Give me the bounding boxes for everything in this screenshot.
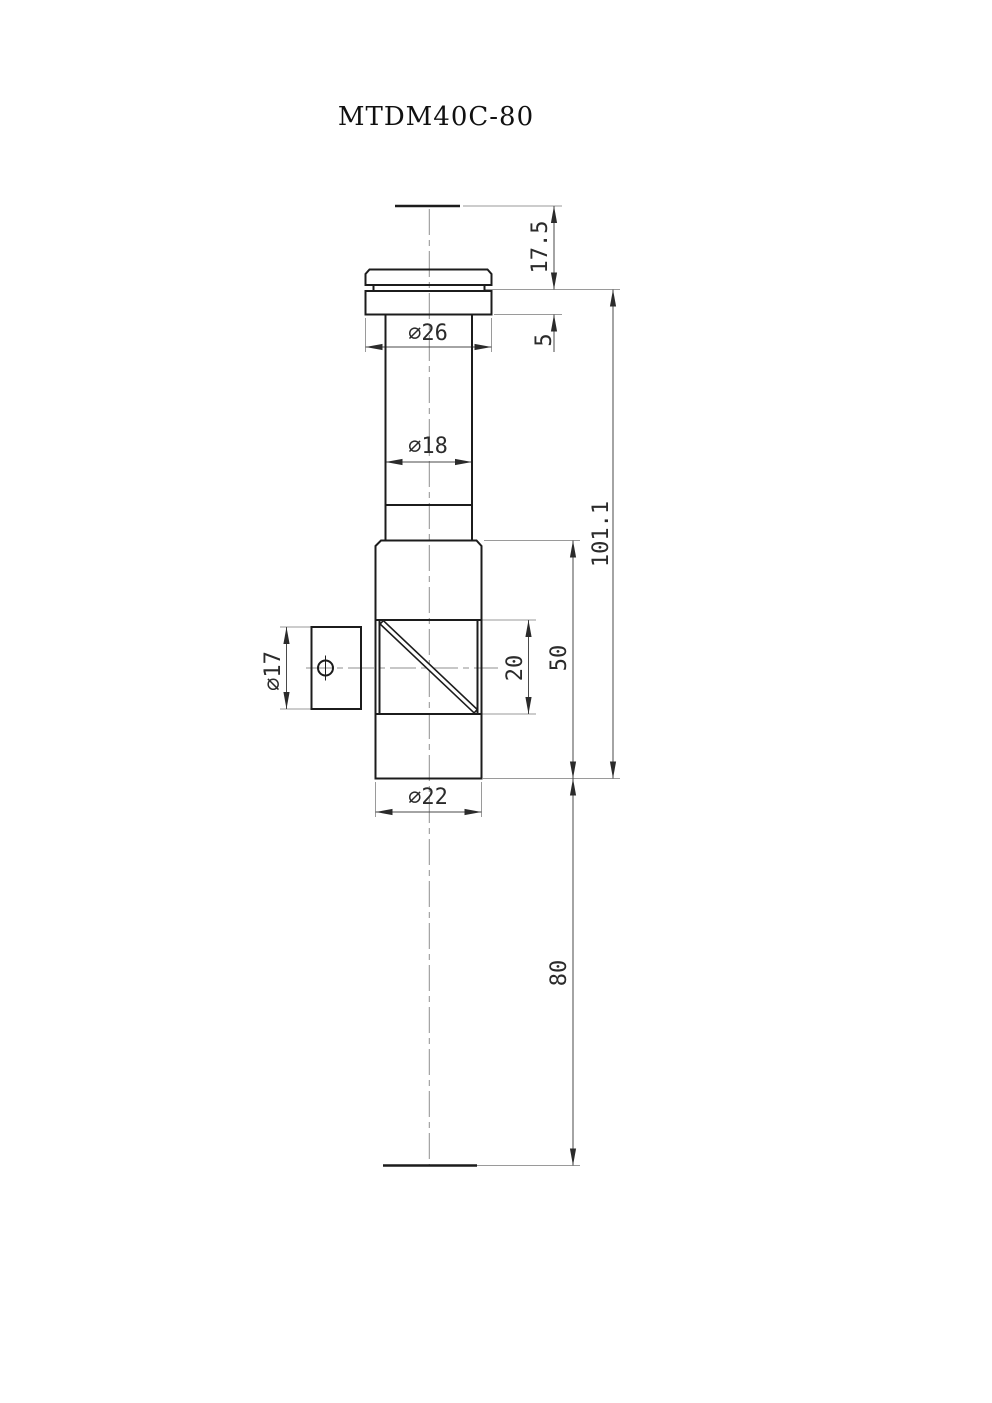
drawing-sheet: MTDM40C-80 ∅26 ∅18 ∅22 17.5 5 101.1 50 2… <box>0 0 992 1403</box>
mount-cap <box>366 270 492 286</box>
dim-text-5: 5 <box>534 333 556 346</box>
dim-text-50: 50 <box>549 645 571 672</box>
drawing-title: MTDM40C-80 <box>338 102 534 132</box>
mount-flange <box>366 291 492 315</box>
dim-text-80: 80 <box>549 960 571 987</box>
dim-text-dia22: ∅22 <box>408 787 448 809</box>
dim-text-101-1: 101.1 <box>591 501 613 567</box>
beamsplitter-plate <box>380 621 477 713</box>
dim-text-dia17: ∅17 <box>263 651 285 691</box>
dim-text-17-5: 17.5 <box>530 221 552 274</box>
technical-drawing <box>0 0 992 1403</box>
centerlines <box>306 209 498 1165</box>
object-lines <box>312 206 492 1166</box>
main-body <box>376 541 482 779</box>
dim-text-dia26: ∅26 <box>408 323 448 345</box>
dim-text-20: 20 <box>505 655 527 682</box>
dim-text-dia18: ∅18 <box>408 436 448 458</box>
